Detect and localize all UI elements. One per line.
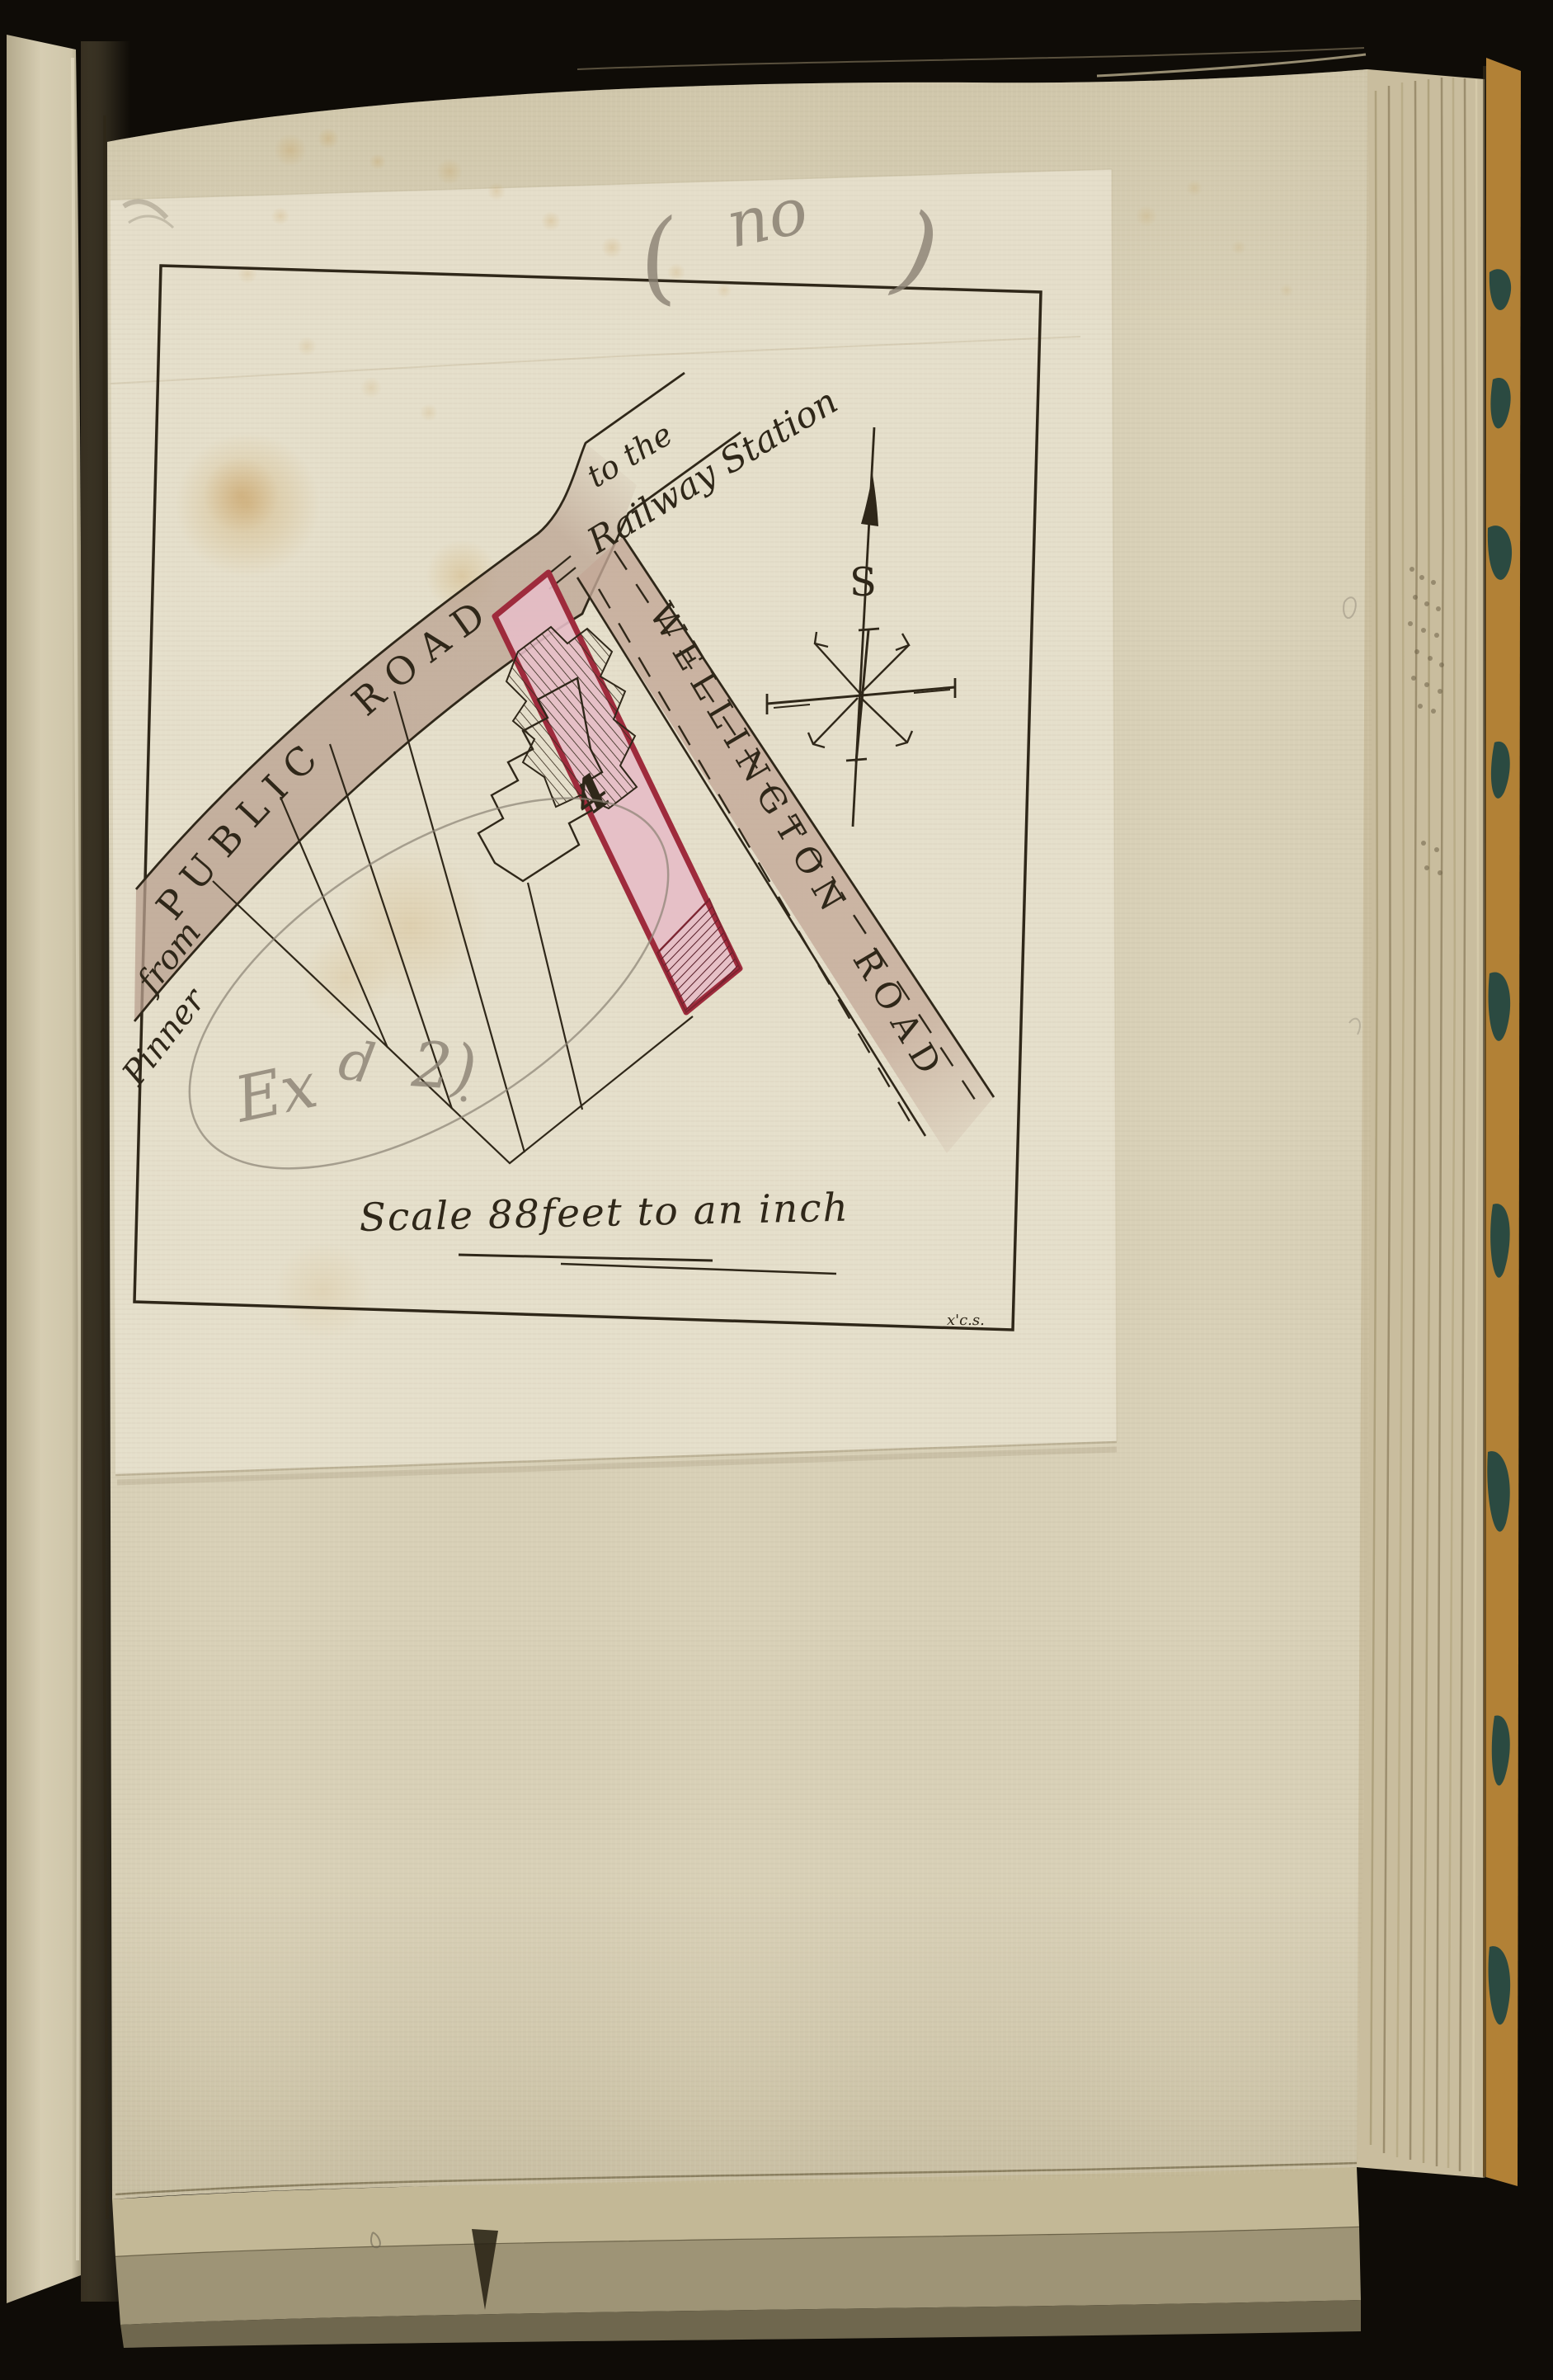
- compass-letter: S: [849, 559, 877, 606]
- pencil-dot: [461, 1096, 467, 1102]
- corner-inscription: x'c.s.: [947, 1312, 985, 1329]
- linen-texture: [107, 69, 1372, 2199]
- marbled-cover-edge: [1483, 58, 1521, 2186]
- scanned-book-page: S PUBLIC ROAD WELLINGTON ROAD from Pinne…: [0, 0, 1553, 2380]
- left-page-edge: [7, 35, 82, 2303]
- pencil-scribble-3: 2): [409, 1027, 479, 1105]
